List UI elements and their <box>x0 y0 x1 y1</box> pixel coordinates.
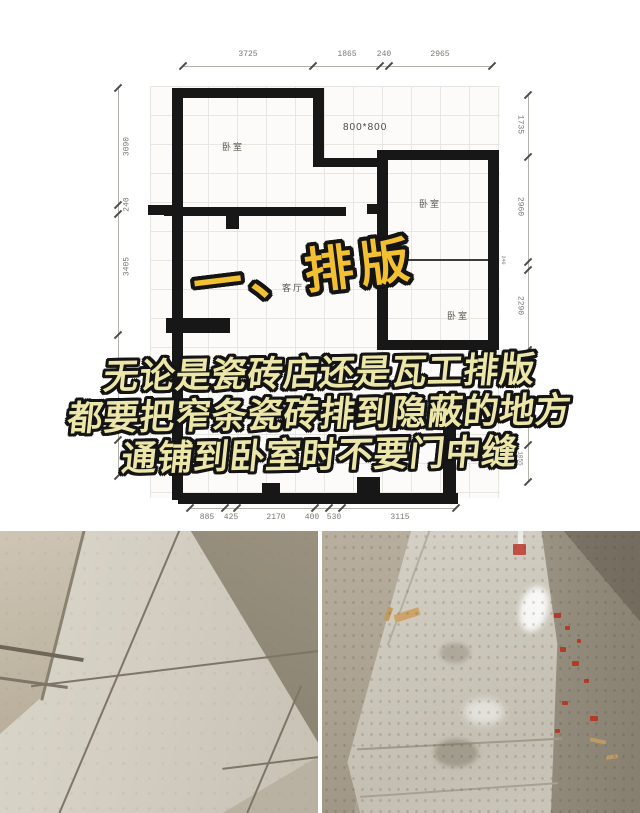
dim-top-1865: 1865 <box>327 50 367 59</box>
photo-strip <box>0 531 640 813</box>
photo-tiled-floor-doorway <box>0 531 318 813</box>
dim-right-2290: 2290 <box>516 286 525 326</box>
wall <box>226 207 239 229</box>
room-label-bedroom-right: 卧室 <box>419 197 441 210</box>
dim-top-3725: 3725 <box>228 50 268 59</box>
wall <box>377 150 499 160</box>
dim-bottom-400: 400 <box>300 513 324 522</box>
dim-left-3090: 3090 <box>123 127 132 167</box>
wall <box>357 477 380 504</box>
wall <box>178 493 458 504</box>
wall <box>262 483 280 494</box>
page: 3725 1865 240 2965 3090 240 3405 1015 17… <box>0 0 640 813</box>
wall <box>313 88 324 167</box>
tile-texture <box>0 531 318 813</box>
dim-top-240: 240 <box>364 50 404 59</box>
dim-bottom-3115: 3115 <box>380 513 420 522</box>
dimension-tick <box>452 504 460 512</box>
wall <box>164 207 346 216</box>
room-label-bedroom-bottom-right: 卧室 <box>447 309 469 322</box>
wall <box>172 88 324 98</box>
dim-top-2965: 2965 <box>420 50 460 59</box>
dim-left-240: 240 <box>123 185 132 225</box>
dimension-line-bottom <box>190 508 456 509</box>
wall <box>166 318 230 333</box>
concrete-texture <box>322 531 640 813</box>
wall <box>313 158 383 167</box>
dim-left-3405: 3405 <box>123 247 132 287</box>
dim-bottom-2170: 2170 <box>256 513 296 522</box>
dimension-tick <box>488 62 496 70</box>
wall <box>148 205 174 215</box>
dimension-line-top <box>183 66 492 67</box>
dim-right-2960: 2960 <box>516 187 525 227</box>
tile-size-note: 800*800 <box>343 122 387 133</box>
dimension-tick <box>524 478 532 486</box>
dim-bottom-425: 425 <box>211 513 251 522</box>
wall <box>488 150 499 350</box>
room-label-bedroom-top-left: 卧室 <box>222 140 244 153</box>
dim-bottom-530: 530 <box>322 513 346 522</box>
photo-tile-installation <box>322 531 640 813</box>
dim-right-1735: 1735 <box>516 105 525 145</box>
wall <box>367 204 377 214</box>
dim-right-240: 240 <box>500 240 506 280</box>
